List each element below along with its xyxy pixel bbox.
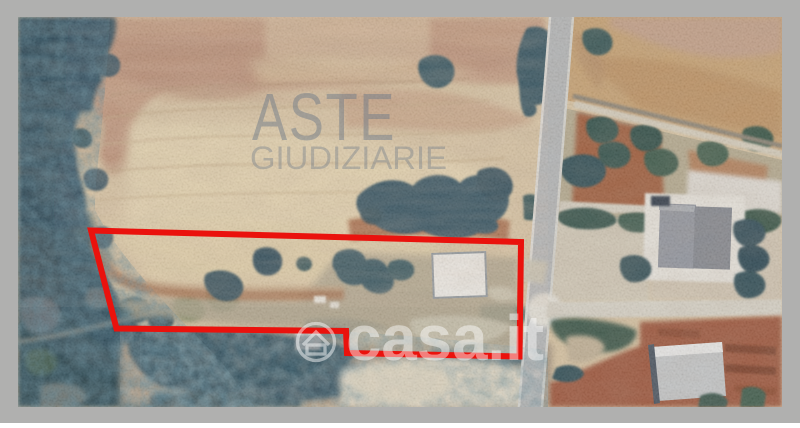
svg-text:GIUDIZIARIE: GIUDIZIARIE — [250, 140, 447, 176]
svg-text:casa.it: casa.it — [346, 302, 544, 374]
